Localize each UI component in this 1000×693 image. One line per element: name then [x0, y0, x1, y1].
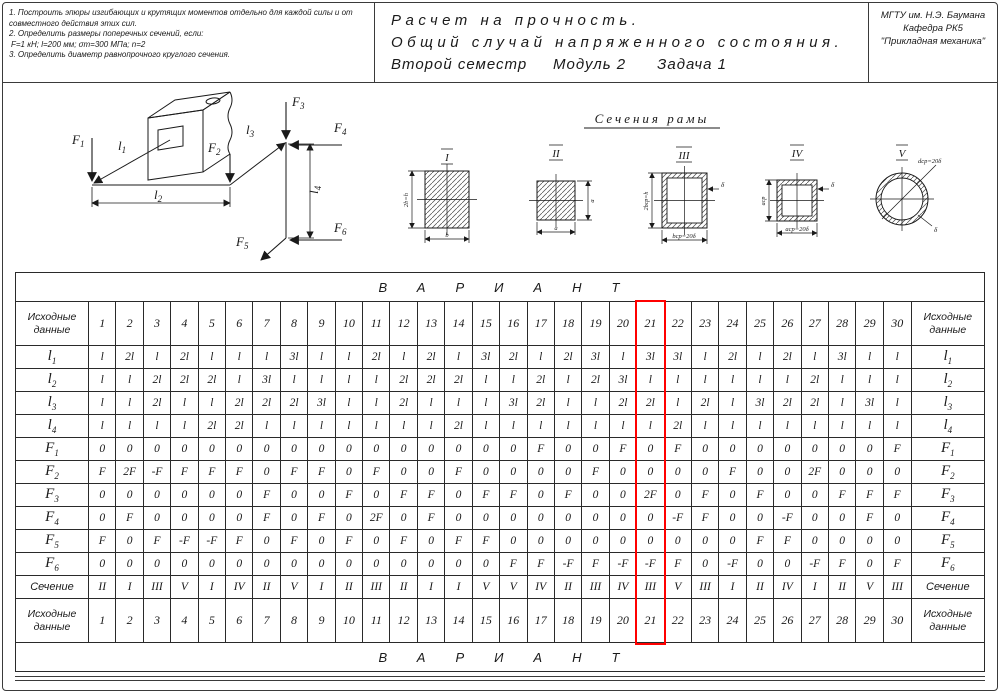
cell-F4-variant-25: 0 [746, 507, 773, 530]
cell-l3-variant-4: l [171, 392, 198, 415]
variant-top-col-23: 23 [691, 302, 718, 346]
force-label-F5: F5 [235, 234, 249, 251]
cell-l1-variant-25: l [746, 346, 773, 369]
cell-F5-variant-4: -F [171, 530, 198, 553]
cell-l3-variant-5: l [198, 392, 225, 415]
cell-l1-variant-11: 2l [363, 346, 390, 369]
variant-top-col-25: 25 [746, 302, 773, 346]
cell-F1-variant-5: 0 [198, 438, 225, 461]
fixed-support-block [148, 92, 232, 180]
cell-F4-variant-16: 0 [500, 507, 527, 530]
row-label-F1-left: F1 [16, 438, 89, 461]
cell-F1-variant-16: 0 [500, 438, 527, 461]
cell-F6-variant-17: F [527, 553, 554, 576]
force-arrows [92, 102, 342, 260]
cell-l4-variant-24: l [719, 415, 746, 438]
cell-F5-variant-28: 0 [828, 530, 855, 553]
cell-F3-variant-20: 0 [609, 484, 636, 507]
cell-l4-variant-6: 2l [226, 415, 253, 438]
cell-F4-variant-14: 0 [445, 507, 472, 530]
cell-F1-variant-12: 0 [390, 438, 417, 461]
variant-band-bottom: ВАРИАНТ [16, 643, 985, 672]
cell-l3-variant-19: l [582, 392, 609, 415]
cell-Сечение-variant-24: I [719, 576, 746, 599]
cell-l3-variant-25: 3l [746, 392, 773, 415]
cell-F2-variant-8: F [280, 461, 307, 484]
variant-top-col-20: 20 [609, 302, 636, 346]
variant-top-col-10: 10 [335, 302, 362, 346]
cell-l4-variant-28: l [828, 415, 855, 438]
cell-F4-variant-10: 0 [335, 507, 362, 530]
cell-F1-variant-23: 0 [691, 438, 718, 461]
cell-F6-variant-18: -F [554, 553, 581, 576]
section-V: V dср=20δ δ [870, 145, 942, 234]
title-block-header: 1. Построить эпюры изгибающих и крутящих… [3, 3, 997, 83]
cell-l4-variant-1: l [89, 415, 116, 438]
cell-F3-variant-23: F [691, 484, 718, 507]
org-chair: "Прикладная механика" [869, 36, 997, 49]
cell-Сечение-variant-27: I [801, 576, 828, 599]
cell-F6-variant-9: 0 [308, 553, 335, 576]
cell-F5-variant-12: F [390, 530, 417, 553]
cell-F6-variant-7: 0 [253, 553, 280, 576]
cell-F6-variant-22: F [664, 553, 691, 576]
cell-F4-variant-22: -F [664, 507, 691, 530]
cell-F1-variant-20: F [609, 438, 636, 461]
variant-top-col-3: 3 [143, 302, 170, 346]
variant-top-col-13: 13 [417, 302, 444, 346]
variant-bottom-col-1: 1 [89, 599, 116, 643]
variant-top-col-14: 14 [445, 302, 472, 346]
cell-F6-variant-10: 0 [335, 553, 362, 576]
section-I-numeral: I [444, 152, 450, 164]
cell-F2-variant-23: 0 [691, 461, 718, 484]
cell-Сечение-variant-22: V [664, 576, 691, 599]
cell-F6-variant-12: 0 [390, 553, 417, 576]
cell-F1-variant-30: F [883, 438, 911, 461]
cell-F5-variant-20: 0 [609, 530, 636, 553]
row-label-F2-right: F2 [911, 461, 984, 484]
variant-bottom-col-11: 11 [363, 599, 390, 643]
cell-F5-variant-8: F [280, 530, 307, 553]
cell-F1-variant-9: 0 [308, 438, 335, 461]
section-I-height-dim: 2b=h [403, 193, 410, 207]
cell-F1-variant-10: 0 [335, 438, 362, 461]
variant-bottom-col-8: 8 [280, 599, 307, 643]
cell-F3-variant-28: F [828, 484, 855, 507]
cell-l1-variant-13: 2l [417, 346, 444, 369]
cell-F6-variant-15: 0 [472, 553, 499, 576]
cell-F1-variant-6: 0 [226, 438, 253, 461]
cell-l4-variant-29: l [856, 415, 883, 438]
row-label-F4-right: F4 [911, 507, 984, 530]
cell-F6-variant-8: 0 [280, 553, 307, 576]
cell-l1-variant-21: 3l [637, 346, 664, 369]
cell-F3-variant-13: F [417, 484, 444, 507]
cell-l1-variant-9: l [308, 346, 335, 369]
cell-F4-variant-1: 0 [89, 507, 116, 530]
cell-F6-variant-13: 0 [417, 553, 444, 576]
frame-diagram: F1 F2 F3 F4 F5 F6 l1 l2 l3 l4 [20, 88, 360, 270]
cell-Сечение-variant-8: V [280, 576, 307, 599]
cell-l4-variant-11: l [363, 415, 390, 438]
cell-F6-variant-24: -F [719, 553, 746, 576]
variant-bottom-col-21: 21 [637, 599, 664, 643]
variants-table: ВАРИАНТИсходные данные123456789101112131… [15, 272, 985, 672]
cell-l4-variant-26: l [774, 415, 801, 438]
cell-Сечение-variant-13: I [417, 576, 444, 599]
cell-l2-variant-29: l [856, 369, 883, 392]
cell-F2-variant-22: 0 [664, 461, 691, 484]
cell-F6-variant-4: 0 [171, 553, 198, 576]
variant-bottom-col-3: 3 [143, 599, 170, 643]
cell-F2-variant-15: 0 [472, 461, 499, 484]
cell-l2-variant-26: l [774, 369, 801, 392]
org-department: Кафедра РК5 [869, 23, 997, 36]
cell-l1-variant-23: l [691, 346, 718, 369]
cell-F1-variant-11: 0 [363, 438, 390, 461]
cell-F5-variant-19: 0 [582, 530, 609, 553]
cell-F5-variant-25: F [746, 530, 773, 553]
cell-l2-variant-25: l [746, 369, 773, 392]
variant-bottom-col-6: 6 [226, 599, 253, 643]
title-line-3: Второй семестр Модуль 2 Задача 1 [391, 54, 868, 77]
task-3: 3. Определить диаметр равнопрочного круг… [9, 50, 367, 61]
cell-l2-variant-10: l [335, 369, 362, 392]
cell-Сечение-variant-19: III [582, 576, 609, 599]
cell-l1-variant-24: 2l [719, 346, 746, 369]
cell-F3-variant-11: 0 [363, 484, 390, 507]
cell-Сечение-variant-3: III [143, 576, 170, 599]
cell-l2-variant-18: l [554, 369, 581, 392]
cell-F2-variant-17: 0 [527, 461, 554, 484]
variant-top-col-16: 16 [500, 302, 527, 346]
cell-F5-variant-22: 0 [664, 530, 691, 553]
variant-top-col-8: 8 [280, 302, 307, 346]
cell-F3-variant-29: F [856, 484, 883, 507]
row-label-F6-left: F6 [16, 553, 89, 576]
cell-F6-variant-14: 0 [445, 553, 472, 576]
cell-l3-variant-10: l [335, 392, 362, 415]
cell-l2-variant-8: l [280, 369, 307, 392]
cell-F2-variant-10: 0 [335, 461, 362, 484]
corner-label-bottom-left: Исходные данные [16, 599, 89, 643]
cell-F5-variant-29: 0 [856, 530, 883, 553]
cell-F6-variant-21: -F [637, 553, 664, 576]
cell-F6-variant-19: F [582, 553, 609, 576]
cell-Сечение-variant-16: V [500, 576, 527, 599]
cell-Сечение-variant-23: III [691, 576, 718, 599]
cell-F1-variant-18: 0 [554, 438, 581, 461]
cell-F5-variant-21: 0 [637, 530, 664, 553]
section-V-thickness-dim: δ [934, 226, 938, 234]
cell-l1-variant-2: 2l [116, 346, 143, 369]
cell-F3-variant-25: F [746, 484, 773, 507]
cell-l3-variant-16: 3l [500, 392, 527, 415]
cell-F6-variant-30: F [883, 553, 911, 576]
cell-F5-variant-3: F [143, 530, 170, 553]
cell-F2-variant-19: F [582, 461, 609, 484]
cell-F2-variant-3: -F [143, 461, 170, 484]
cell-F1-variant-25: 0 [746, 438, 773, 461]
cell-F3-variant-2: 0 [116, 484, 143, 507]
variant-bottom-col-18: 18 [554, 599, 581, 643]
row-label-l2-left: l2 [16, 369, 89, 392]
cell-F2-variant-27: 2F [801, 461, 828, 484]
cell-l1-variant-29: l [856, 346, 883, 369]
variant-bottom-col-30: 30 [883, 599, 911, 643]
cell-F2-variant-29: 0 [856, 461, 883, 484]
cell-F3-variant-10: F [335, 484, 362, 507]
cell-F3-variant-22: 0 [664, 484, 691, 507]
cell-F3-variant-24: 0 [719, 484, 746, 507]
table-bottom-double-rule [15, 676, 985, 681]
cell-l4-variant-8: l [280, 415, 307, 438]
cell-l1-variant-12: l [390, 346, 417, 369]
cell-F3-variant-19: 0 [582, 484, 609, 507]
cell-F6-variant-20: -F [609, 553, 636, 576]
variant-bottom-col-4: 4 [171, 599, 198, 643]
cell-F4-variant-24: 0 [719, 507, 746, 530]
task-2: 2. Определить размеры поперечных сечений… [9, 29, 367, 40]
variant-top-col-28: 28 [828, 302, 855, 346]
variant-bottom-col-17: 17 [527, 599, 554, 643]
cell-l1-variant-10: l [335, 346, 362, 369]
cell-F2-variant-13: 0 [417, 461, 444, 484]
cell-l3-variant-6: 2l [226, 392, 253, 415]
cell-Сечение-variant-28: II [828, 576, 855, 599]
variant-bottom-col-12: 12 [390, 599, 417, 643]
cell-l2-variant-24: l [719, 369, 746, 392]
cell-F3-variant-26: 0 [774, 484, 801, 507]
cell-F3-variant-9: 0 [308, 484, 335, 507]
cell-l1-variant-8: 3l [280, 346, 307, 369]
variant-top-col-26: 26 [774, 302, 801, 346]
organization-stamp: МГТУ им. Н.Э. Баумана Кафедра РК5 "Прикл… [869, 3, 997, 82]
cell-l1-variant-26: 2l [774, 346, 801, 369]
cell-l4-variant-13: l [417, 415, 444, 438]
cell-l2-variant-22: l [664, 369, 691, 392]
cell-F1-variant-17: F [527, 438, 554, 461]
cell-l2-variant-7: 3l [253, 369, 280, 392]
variant-bottom-col-20: 20 [609, 599, 636, 643]
variant-top-col-17: 17 [527, 302, 554, 346]
cell-l1-variant-1: l [89, 346, 116, 369]
cell-F4-variant-23: F [691, 507, 718, 530]
section-II-width-dim: a [554, 225, 557, 232]
cell-F2-variant-24: F [719, 461, 746, 484]
cell-l2-variant-2: l [116, 369, 143, 392]
cell-F4-variant-7: F [253, 507, 280, 530]
cell-F3-variant-7: F [253, 484, 280, 507]
section-II-numeral: II [551, 148, 561, 160]
cell-F2-variant-26: 0 [774, 461, 801, 484]
cell-l3-variant-28: l [828, 392, 855, 415]
cell-F4-variant-18: 0 [554, 507, 581, 530]
cell-F5-variant-9: 0 [308, 530, 335, 553]
cell-F1-variant-3: 0 [143, 438, 170, 461]
cell-l1-variant-28: 3l [828, 346, 855, 369]
section-II: II a a [529, 145, 596, 235]
variant-bottom-col-19: 19 [582, 599, 609, 643]
cell-l3-variant-23: 2l [691, 392, 718, 415]
cell-l2-variant-15: l [472, 369, 499, 392]
cell-l3-variant-14: l [445, 392, 472, 415]
cell-F2-variant-25: 0 [746, 461, 773, 484]
variant-top-col-4: 4 [171, 302, 198, 346]
cell-l4-variant-22: 2l [664, 415, 691, 438]
variant-bottom-col-26: 26 [774, 599, 801, 643]
cell-F5-variant-7: 0 [253, 530, 280, 553]
variant-bottom-col-2: 2 [116, 599, 143, 643]
cell-l1-variant-5: l [198, 346, 225, 369]
cell-F3-variant-5: 0 [198, 484, 225, 507]
cell-Сечение-variant-17: IV [527, 576, 554, 599]
cell-l1-variant-6: l [226, 346, 253, 369]
cell-F4-variant-17: 0 [527, 507, 554, 530]
cell-F4-variant-21: 0 [637, 507, 664, 530]
cell-Сечение-variant-7: II [253, 576, 280, 599]
cell-Сечение-variant-18: II [554, 576, 581, 599]
frame-sections-drawing: Сечения рамы I 2b=h b II a a III 2bср= [362, 93, 992, 265]
cell-l3-variant-30: l [883, 392, 911, 415]
task-1: 1. Построить эпюры изгибающих и крутящих… [9, 8, 367, 29]
section-V-numeral: V [899, 148, 907, 160]
cell-l4-variant-20: l [609, 415, 636, 438]
length-label-l2: l2 [154, 187, 163, 204]
cell-F2-variant-1: F [89, 461, 116, 484]
cell-F3-variant-4: 0 [171, 484, 198, 507]
cell-l4-variant-7: l [253, 415, 280, 438]
cell-l4-variant-21: l [637, 415, 664, 438]
cell-F6-variant-5: 0 [198, 553, 225, 576]
cell-l2-variant-23: l [691, 369, 718, 392]
force-label-F6: F6 [333, 220, 347, 237]
cell-l2-variant-17: 2l [527, 369, 554, 392]
cell-l3-variant-26: 2l [774, 392, 801, 415]
section-III-numeral: III [678, 150, 691, 162]
variant-top-col-15: 15 [472, 302, 499, 346]
cell-l3-variant-13: l [417, 392, 444, 415]
cell-l4-variant-16: l [500, 415, 527, 438]
cell-l3-variant-11: l [363, 392, 390, 415]
cell-F6-variant-26: 0 [774, 553, 801, 576]
cell-l1-variant-19: 3l [582, 346, 609, 369]
cell-F6-variant-1: 0 [89, 553, 116, 576]
cell-F3-variant-27: 0 [801, 484, 828, 507]
cell-l1-variant-17: l [527, 346, 554, 369]
length-label-l1: l1 [118, 138, 126, 155]
variant-bottom-col-29: 29 [856, 599, 883, 643]
cell-Сечение-variant-1: II [89, 576, 116, 599]
cell-l3-variant-2: l [116, 392, 143, 415]
cell-F1-variant-2: 0 [116, 438, 143, 461]
row-label-Сечение-left: Сечение [16, 576, 89, 599]
cell-F1-variant-4: 0 [171, 438, 198, 461]
variant-top-col-22: 22 [664, 302, 691, 346]
variant-top-col-1: 1 [89, 302, 116, 346]
cell-Сечение-variant-25: II [746, 576, 773, 599]
cell-l4-variant-4: l [171, 415, 198, 438]
cell-F5-variant-16: 0 [500, 530, 527, 553]
cell-F1-variant-26: 0 [774, 438, 801, 461]
row-label-F2-left: F2 [16, 461, 89, 484]
cell-F3-variant-3: 0 [143, 484, 170, 507]
cell-l1-variant-14: l [445, 346, 472, 369]
cell-l2-variant-9: l [308, 369, 335, 392]
variant-top-col-7: 7 [253, 302, 280, 346]
variant-bottom-col-13: 13 [417, 599, 444, 643]
section-IV-numeral: IV [791, 148, 804, 160]
cell-F3-variant-21: 2F [637, 484, 664, 507]
row-label-l3-left: l3 [16, 392, 89, 415]
cell-F4-variant-12: 0 [390, 507, 417, 530]
cell-Сечение-variant-21: III [637, 576, 664, 599]
cell-F4-variant-2: F [116, 507, 143, 530]
cell-F2-variant-2: 2F [116, 461, 143, 484]
cell-F6-variant-27: -F [801, 553, 828, 576]
cell-l3-variant-22: l [664, 392, 691, 415]
cell-F1-variant-14: 0 [445, 438, 472, 461]
section-V-diameter-dim: dср=20δ [918, 158, 942, 165]
variant-bottom-col-23: 23 [691, 599, 718, 643]
variant-bottom-col-16: 16 [500, 599, 527, 643]
row-label-l1-right: l1 [911, 346, 984, 369]
cell-l3-variant-20: 2l [609, 392, 636, 415]
cell-l4-variant-30: l [883, 415, 911, 438]
cell-F2-variant-9: F [308, 461, 335, 484]
length-label-l3: l3 [246, 122, 255, 139]
cell-F5-variant-11: 0 [363, 530, 390, 553]
variant-bottom-col-24: 24 [719, 599, 746, 643]
section-III-thickness-dim: δ [721, 181, 725, 189]
cell-Сечение-variant-14: I [445, 576, 472, 599]
cell-F5-variant-18: 0 [554, 530, 581, 553]
cell-F1-variant-7: 0 [253, 438, 280, 461]
cell-Сечение-variant-29: V [856, 576, 883, 599]
document-title: Расчет на прочность. Общий случай напряж… [375, 3, 869, 82]
variant-bottom-col-28: 28 [828, 599, 855, 643]
cell-F2-variant-21: 0 [637, 461, 664, 484]
variant-bottom-col-7: 7 [253, 599, 280, 643]
variant-top-col-6: 6 [226, 302, 253, 346]
variant-top-col-27: 27 [801, 302, 828, 346]
cell-F4-variant-4: 0 [171, 507, 198, 530]
cell-l2-variant-27: 2l [801, 369, 828, 392]
cell-Сечение-variant-9: I [308, 576, 335, 599]
cell-F5-variant-6: F [226, 530, 253, 553]
variant-top-col-30: 30 [883, 302, 911, 346]
section-II-height-dim: a [589, 199, 596, 202]
cell-F1-variant-15: 0 [472, 438, 499, 461]
section-III-height-dim: 2bср=h [644, 192, 650, 211]
row-label-l4-right: l4 [911, 415, 984, 438]
variant-bottom-col-5: 5 [198, 599, 225, 643]
cell-l4-variant-15: l [472, 415, 499, 438]
cell-l2-variant-20: 3l [609, 369, 636, 392]
cell-l2-variant-21: l [637, 369, 664, 392]
row-label-F5-left: F5 [16, 530, 89, 553]
cell-F2-variant-4: F [171, 461, 198, 484]
row-label-F5-right: F5 [911, 530, 984, 553]
cell-F2-variant-20: 0 [609, 461, 636, 484]
cell-F6-variant-11: 0 [363, 553, 390, 576]
cell-Сечение-variant-12: II [390, 576, 417, 599]
cell-F3-variant-15: F [472, 484, 499, 507]
cell-F5-variant-17: 0 [527, 530, 554, 553]
variant-bottom-col-22: 22 [664, 599, 691, 643]
cell-F3-variant-12: F [390, 484, 417, 507]
